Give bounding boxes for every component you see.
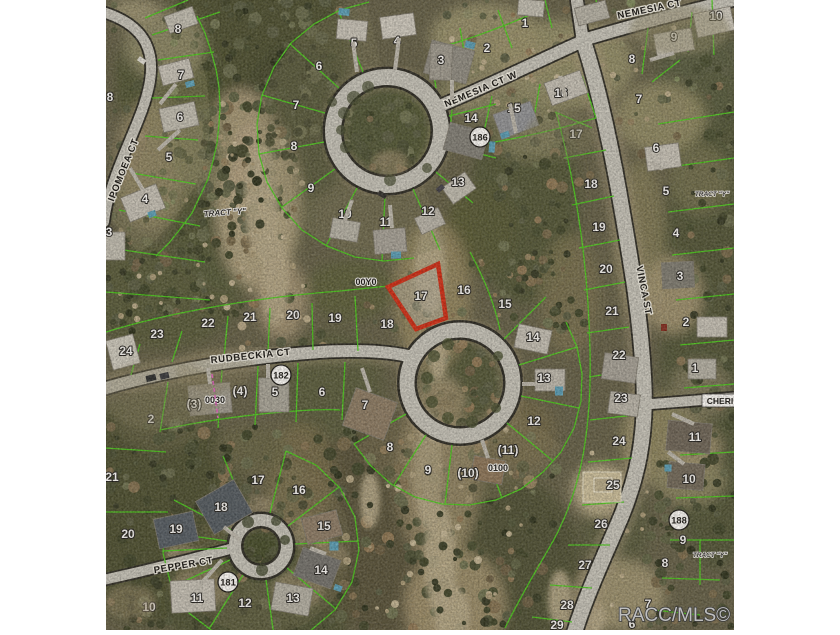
svg-text:RACC/MLS©: RACC/MLS© (618, 605, 730, 626)
